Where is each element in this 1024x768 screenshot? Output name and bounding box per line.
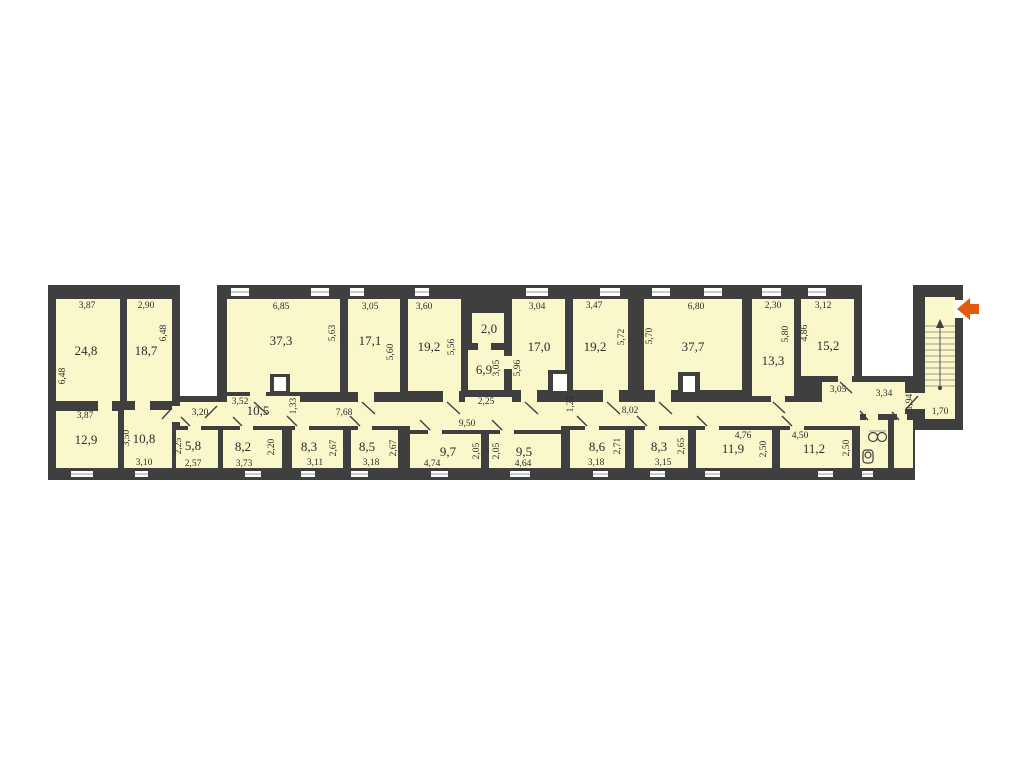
dimension-label: 2,90 [138,301,155,311]
dimension-label: 3,10 [136,458,153,468]
dimension-label: 7,68 [336,408,353,418]
door-gap [250,392,266,402]
dimension-label: 3,52 [232,397,249,407]
room-area-label: 11,2 [803,441,825,456]
door-gap [645,426,659,430]
dimension-label: 2,67 [389,439,399,456]
window [818,471,833,477]
window [71,471,93,477]
dimension-label: 3,47 [586,301,603,311]
door-gap [358,426,372,430]
room-area-label: 8,6 [589,439,606,454]
window [231,288,249,296]
dimension-label: 3,04 [529,302,546,312]
dimension-label: 1,22 [566,395,576,412]
room-area-label: 17,0 [528,339,551,354]
window [808,288,826,296]
dimension-label: 5,60 [386,343,396,360]
door-gap [500,430,514,434]
dimension-label: 2,71 [613,437,623,454]
floor-plan-drawing: 24,818,712,910,85,88,210,537,317,119,22,… [0,0,1024,768]
room-area-label: 8,5 [359,439,375,454]
door-gap [585,426,599,430]
dimension-label: 5,70 [645,327,655,344]
floor-plan-page: 24,818,712,910,85,88,210,537,317,119,22,… [0,0,1024,768]
dimension-label: 4,76 [735,431,752,441]
room-area-label: 11,9 [722,441,744,456]
room-area-label: 24,8 [75,343,98,358]
dimension-label: 2,50 [759,440,769,457]
dimension-label: 3,12 [815,301,832,311]
dimension-label: 4,64 [515,459,532,469]
room-area-label: 6,9 [476,362,492,377]
door-gap [771,396,785,402]
sink-icon [869,433,878,442]
dimension-label: 5,80 [781,325,791,342]
dimension-label: 2,20 [267,438,277,455]
dimension-label: 5,63 [328,324,338,341]
room-area-label: 10,5 [247,403,270,418]
room-area-label: 37,7 [682,339,705,354]
dimension-label: 5,56 [447,338,457,355]
dimension-label: 3,34 [876,389,893,399]
room-area-label: 13,3 [762,353,785,368]
dimension-label: 2,57 [185,459,202,469]
dimension-label: 2,05 [492,442,502,459]
sink-icon [878,433,887,442]
dimension-label: 3,73 [236,459,253,469]
dimension-label: 2,25 [174,437,184,454]
room-area-label: 19,2 [584,339,607,354]
dimension-label: 9,50 [459,419,476,429]
shaft [678,372,700,396]
stairs-start-dot [938,386,942,390]
door-gap [443,391,459,402]
dimension-label: 4,50 [792,431,809,441]
room-area-label: 9,5 [516,444,532,459]
dimension-label: 2,05 [472,442,482,459]
door-gap [358,392,374,402]
room-area-label: 8,3 [301,439,317,454]
dimension-label: 6,48 [58,367,68,384]
window [415,288,429,296]
door-gap [838,376,852,382]
dimension-label: 4,86 [800,324,810,341]
window [705,471,720,477]
dimension-label: 3,87 [79,301,96,311]
window [301,471,315,477]
window [311,288,329,296]
door-gap [790,426,804,430]
window [245,471,261,477]
door-gap [98,401,112,411]
window [431,471,448,477]
dimension-label: 3,60 [416,302,433,312]
dimension-label: 2,65 [677,437,687,454]
door-gap [504,356,512,369]
dimension-label: 3,11 [307,458,324,468]
room-area-label: 17,1 [359,333,382,348]
door-gap [135,401,150,411]
dimension-label: 1,33 [289,397,299,414]
room-wc [894,420,913,468]
door-gap [521,390,537,402]
room-area-label: 10,8 [133,431,156,446]
dimension-label: 3,15 [655,458,672,468]
door-gap [478,343,491,350]
dimension-label: 3,18 [588,458,605,468]
dimension-label: 8,02 [622,406,639,416]
window [650,471,665,477]
shaft [270,374,290,394]
dimension-label: 1,94 [905,393,915,410]
window [135,471,148,477]
door-gap [705,426,719,430]
window [350,288,364,296]
room-area-label: 37,3 [270,333,293,348]
window [510,471,530,477]
room-area-label: 8,2 [235,439,251,454]
window [593,471,608,477]
window [762,288,781,296]
toilet-icon-bowl [865,452,871,458]
dimension-label: 5,96 [513,359,523,376]
dimension-label: 2,67 [329,439,339,456]
dimension-label: 4,74 [424,459,441,469]
dimension-label: 5,72 [617,328,627,345]
door-gap [240,426,253,430]
dimension-label: 2,30 [765,301,782,311]
window [704,288,722,296]
window [600,288,620,296]
door-gap [188,426,201,430]
dimension-label: 6,80 [688,302,705,312]
dimension-label: 3,05 [492,359,502,376]
room-area-label: 18,7 [135,343,158,358]
dimension-label: 3,05 [362,302,379,312]
dimension-label: 2,50 [842,439,852,456]
door-gap [295,426,309,430]
dimension-label: 1,70 [932,407,949,417]
dimension-label: 3,20 [192,408,209,418]
corridor-jog-9-50 [410,420,561,430]
window [652,288,670,296]
dimension-label: 3,18 [363,458,380,468]
dimension-label: 3,50 [122,429,132,446]
door-gap [172,406,180,422]
door-gap [603,390,619,402]
dimension-label: 3,05 [830,385,847,395]
dimension-label: 2,25 [478,397,495,407]
door-gap [655,390,671,402]
window [526,288,548,296]
room-area-label: 12,9 [75,432,98,447]
dimension-label: 6,85 [273,302,290,312]
room-area-label: 9,7 [440,444,457,459]
dimension-label: 3,87 [77,411,94,421]
room-area-label: 8,3 [651,439,667,454]
window [862,471,873,477]
shaft [548,370,572,395]
room-area-label: 5,8 [185,438,201,453]
room-13-3 [752,299,794,396]
room-area-label: 2,0 [481,321,497,336]
dimension-label: 6,48 [159,324,169,341]
window [351,471,368,477]
room-area-label: 19,2 [418,339,441,354]
room-area-label: 15,2 [817,338,840,353]
door-gap [428,430,442,434]
